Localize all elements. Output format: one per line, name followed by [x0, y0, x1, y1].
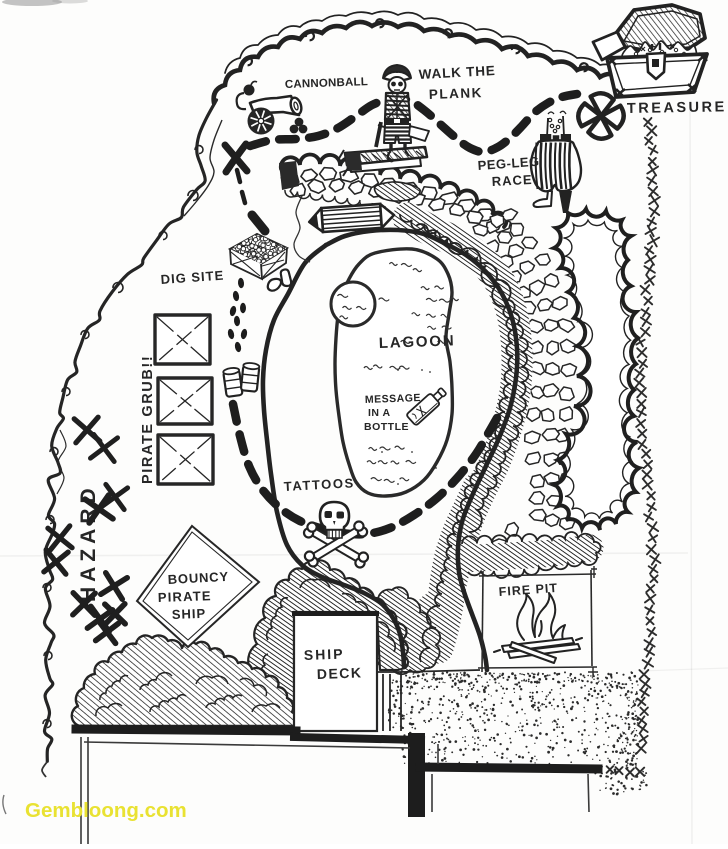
svg-text:TREASURE: TREASURE [627, 99, 727, 117]
svg-text:PIRATE: PIRATE [158, 588, 212, 605]
svg-text:MESSAGE: MESSAGE [365, 392, 421, 406]
svg-text:SHIP: SHIP [304, 646, 345, 663]
svg-text:Gembloong.com: Gembloong.com [25, 799, 187, 822]
svg-text:DECK: DECK [317, 664, 363, 682]
svg-text:LAGOON: LAGOON [379, 332, 456, 352]
svg-text:IN A: IN A [368, 407, 391, 419]
svg-text:SHIP: SHIP [172, 606, 207, 622]
svg-text:PLANK: PLANK [429, 85, 483, 102]
svg-text:PIRATE GRUB!!: PIRATE GRUB!! [140, 355, 156, 484]
svg-text:RACE: RACE [491, 172, 533, 189]
svg-text:BOUNCY: BOUNCY [167, 569, 229, 587]
svg-text:BOTTLE: BOTTLE [364, 421, 409, 433]
